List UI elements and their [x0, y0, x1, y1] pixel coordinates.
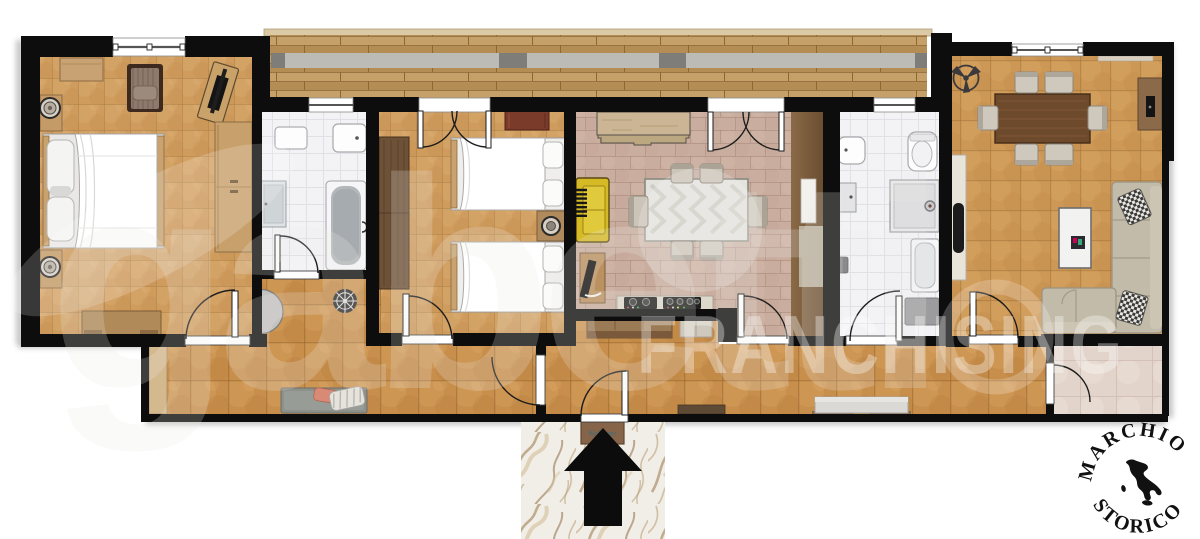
- svg-text:gabetti: gabetti: [48, 116, 933, 454]
- svg-text:FRANCHISING: FRANCHISING: [637, 298, 1124, 391]
